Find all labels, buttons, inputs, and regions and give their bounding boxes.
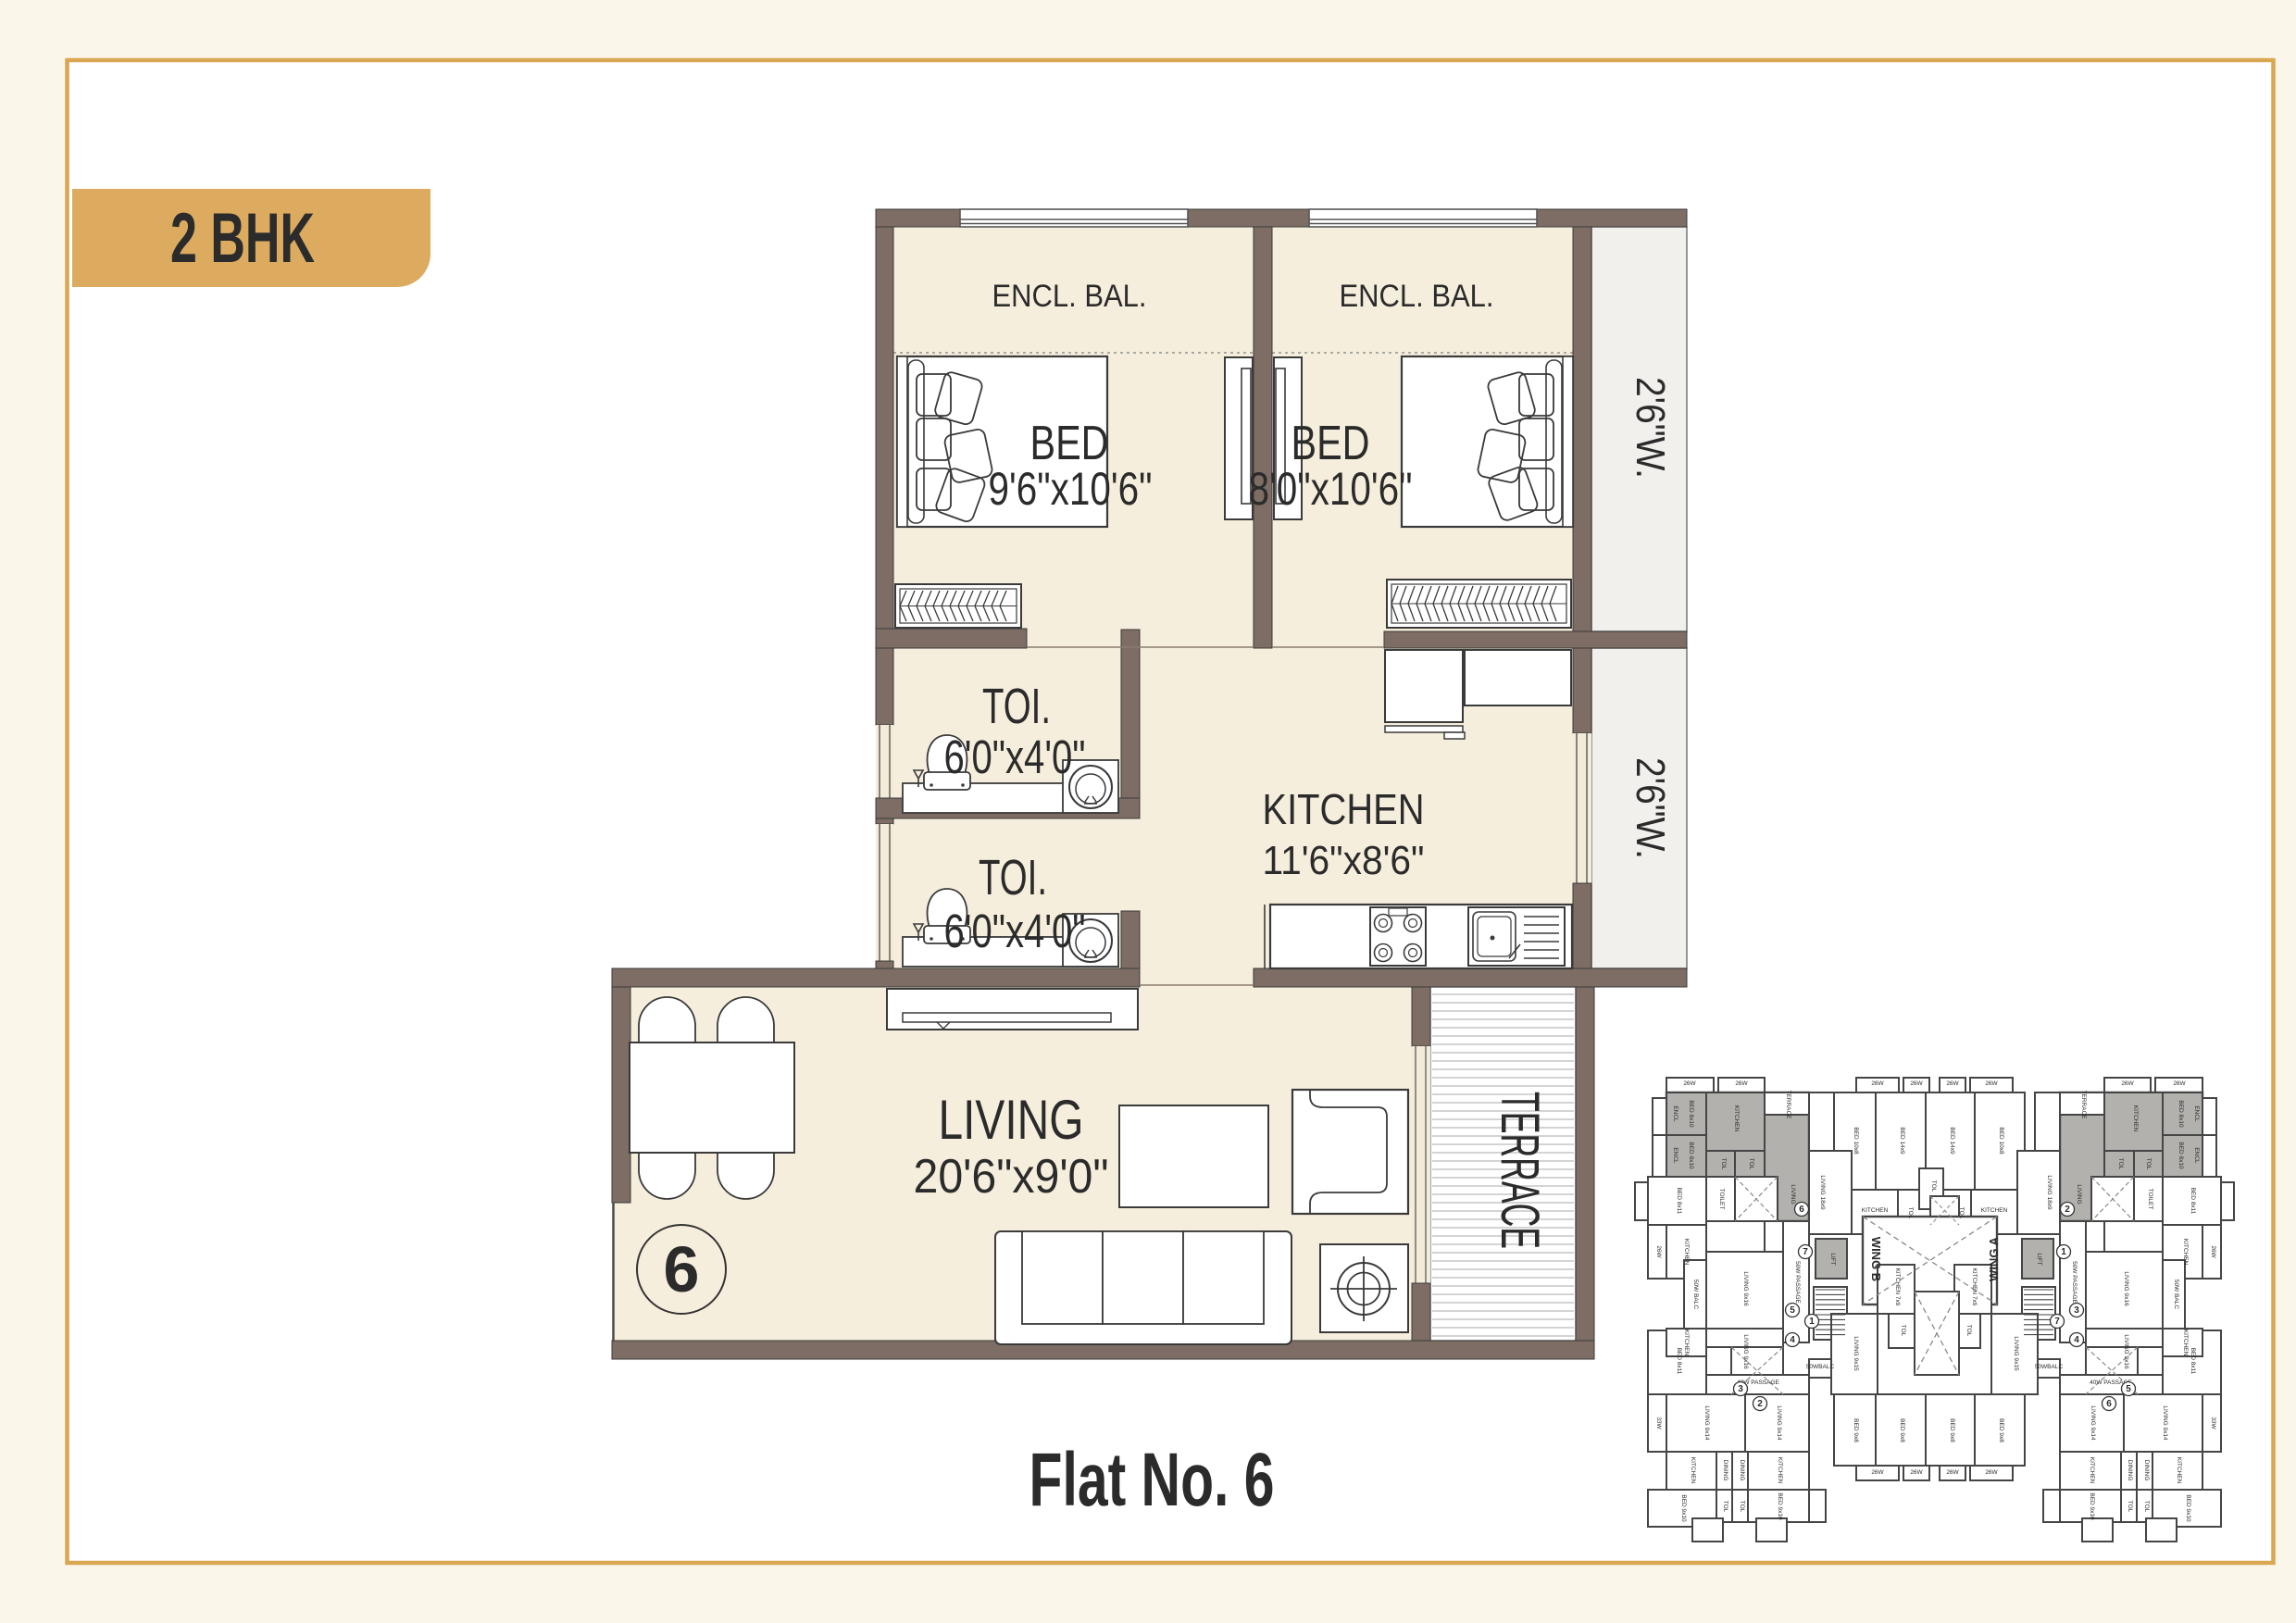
svg-text:26W: 26W	[2210, 1245, 2216, 1258]
svg-text:BED 8x10: BED 8x10	[2177, 1100, 2184, 1128]
svg-text:BED 8x11: BED 8x11	[2190, 1348, 2196, 1375]
svg-text:BED 9x10: BED 9x10	[2185, 1494, 2191, 1522]
svg-text:TOL: TOL	[2127, 1501, 2133, 1513]
svg-text:KITCHEN: KITCHEN	[1733, 1105, 1740, 1132]
svg-text:BED 9x10: BED 9x10	[1777, 1492, 1783, 1520]
svg-text:BED 9x8: BED 9x8	[1998, 1418, 2004, 1442]
svg-text:KITCHEN 7x9: KITCHEN 7x9	[1971, 1268, 1978, 1306]
svg-text:9'6"x10'6": 9'6"x10'6"	[989, 463, 1153, 515]
svg-text:WING B: WING B	[1869, 1237, 1883, 1281]
svg-text:LIVING 9x15: LIVING 9x15	[2013, 1336, 2019, 1371]
svg-text:ENCL: ENCL	[1672, 1147, 1678, 1164]
svg-text:KITCHEN: KITCHEN	[1777, 1457, 1783, 1484]
svg-text:3: 3	[1738, 1384, 1743, 1394]
svg-text:6: 6	[1799, 1205, 1804, 1215]
svg-text:ENCL. BAL.: ENCL. BAL.	[992, 279, 1147, 314]
svg-text:LIVING: LIVING	[939, 1089, 1084, 1151]
svg-text:TOL: TOL	[2143, 1501, 2150, 1513]
svg-text:TOL: TOL	[2145, 1158, 2152, 1170]
svg-text:TOL: TOL	[1722, 1501, 1728, 1513]
svg-text:TOL: TOL	[1907, 1207, 1914, 1219]
svg-text:26W: 26W	[1871, 1469, 1884, 1476]
svg-text:2: 2	[1757, 1399, 1763, 1409]
svg-text:TOILET: TOILET	[1718, 1189, 1725, 1210]
svg-text:TERRACE: TERRACE	[1785, 1090, 1791, 1119]
svg-text:KITCHEN: KITCHEN	[1690, 1457, 1696, 1484]
svg-text:LIVING 9x16: LIVING 9x16	[1742, 1334, 1749, 1369]
svg-text:TERRACE: TERRACE	[1490, 1092, 1550, 1249]
svg-text:1: 1	[2061, 1247, 2066, 1257]
svg-text:2'6"W.: 2'6"W.	[1628, 377, 1673, 479]
svg-text:KITCHEN: KITCHEN	[1263, 785, 1425, 833]
svg-text:BED 8x11: BED 8x11	[2190, 1188, 2196, 1215]
svg-text:TOILET: TOILET	[2147, 1189, 2153, 1210]
svg-text:LIVING 9x14: LIVING 9x14	[1776, 1405, 1782, 1441]
svg-text:KITCHEN: KITCHEN	[1862, 1207, 1889, 1214]
svg-text:LIVING 9x16: LIVING 9x16	[2123, 1334, 2129, 1369]
svg-text:TOI.: TOI.	[979, 850, 1047, 905]
svg-text:26W: 26W	[1946, 1080, 1959, 1087]
svg-text:KITCHEN: KITCHEN	[1683, 1239, 1690, 1266]
svg-text:26W: 26W	[1655, 1245, 1662, 1258]
svg-text:KITCHEN: KITCHEN	[1683, 1330, 1690, 1356]
svg-text:TOL: TOL	[1900, 1325, 1906, 1337]
svg-text:TOL: TOL	[1739, 1501, 1745, 1513]
svg-text:7: 7	[1803, 1247, 1808, 1257]
svg-text:TOL: TOL	[1930, 1180, 1937, 1192]
svg-text:LIVING 9x14: LIVING 9x14	[1703, 1405, 1710, 1441]
svg-text:50W PASSAGE: 50W PASSAGE	[1794, 1261, 1801, 1304]
svg-text:ENCL. BAL.: ENCL. BAL.	[1340, 279, 1494, 314]
svg-text:TERRACE: TERRACE	[2080, 1090, 2087, 1119]
svg-text:50W PASSAGE: 50W PASSAGE	[2071, 1261, 2078, 1304]
svg-text:20'6"x9'0": 20'6"x9'0"	[914, 1150, 1109, 1204]
svg-text:BED 9x10: BED 9x10	[1680, 1494, 1687, 1522]
svg-text:5: 5	[1790, 1305, 1795, 1316]
svg-text:LIVING 9x14: LIVING 9x14	[2162, 1405, 2168, 1441]
svg-text:26W: 26W	[1985, 1469, 1998, 1476]
svg-text:BED 9x10: BED 9x10	[2089, 1492, 2095, 1520]
svg-text:26W: 26W	[2121, 1080, 2134, 1087]
svg-text:26W: 26W	[1910, 1469, 1923, 1476]
svg-text:BED 10x8: BED 10x8	[1853, 1127, 1859, 1155]
svg-text:LIVING 18x9: LIVING 18x9	[2046, 1175, 2053, 1210]
svg-text:DINING: DINING	[1722, 1460, 1728, 1481]
svg-text:BED 8x10: BED 8x10	[1688, 1100, 1694, 1128]
svg-text:LIFT: LIFT	[2036, 1253, 2042, 1265]
svg-text:ENCL: ENCL	[2193, 1147, 2200, 1164]
svg-text:Flat No. 6: Flat No. 6	[1029, 1438, 1275, 1522]
svg-text:KITCHEN: KITCHEN	[2132, 1105, 2139, 1132]
svg-text:KITCHEN: KITCHEN	[2182, 1330, 2189, 1356]
svg-text:TOI.: TOI.	[982, 679, 1051, 734]
svg-text:26W: 26W	[1946, 1469, 1959, 1476]
svg-text:DINING: DINING	[2143, 1460, 2150, 1481]
svg-text:6'0"x4'0": 6'0"x4'0"	[944, 730, 1086, 783]
svg-text:LIVING 9x14: LIVING 9x14	[2090, 1405, 2096, 1441]
svg-text:BED 9x8: BED 9x8	[1949, 1418, 1955, 1442]
svg-text:8'0"x10'6": 8'0"x10'6"	[1249, 463, 1413, 515]
svg-text:2 BHK: 2 BHK	[170, 199, 315, 278]
svg-text:26W: 26W	[1910, 1080, 1923, 1087]
svg-text:BED 8x10: BED 8x10	[2177, 1142, 2184, 1169]
svg-text:26W: 26W	[1985, 1080, 1998, 1087]
svg-text:26W: 26W	[1735, 1080, 1748, 1087]
svg-text:50WBALC: 50WBALC	[1806, 1364, 1835, 1370]
svg-text:ENCL: ENCL	[1672, 1105, 1678, 1122]
svg-text:DINING: DINING	[1739, 1460, 1745, 1481]
svg-text:26W: 26W	[1683, 1080, 1696, 1087]
svg-text:TOL: TOL	[1965, 1325, 1972, 1337]
svg-text:LIVING 18x9: LIVING 18x9	[1819, 1175, 1826, 1210]
svg-text:LIVING 9x16: LIVING 9x16	[1742, 1271, 1749, 1306]
svg-text:BED 14x9: BED 14x9	[1899, 1127, 1905, 1155]
svg-text:LIVING: LIVING	[1790, 1184, 1796, 1204]
svg-text:LIVING: LIVING	[2076, 1184, 2082, 1204]
svg-text:26W: 26W	[1871, 1080, 1884, 1087]
svg-text:50WBALC: 50WBALC	[2035, 1364, 2064, 1370]
svg-text:TOL: TOL	[1720, 1158, 1727, 1170]
svg-text:KITCHEN: KITCHEN	[2089, 1457, 2095, 1484]
svg-text:11'6"x8'6": 11'6"x8'6"	[1263, 838, 1425, 883]
svg-text:6: 6	[2106, 1399, 2112, 1409]
svg-text:26W: 26W	[2173, 1080, 2186, 1087]
svg-text:BED 8x11: BED 8x11	[1676, 1188, 1682, 1215]
svg-text:50W BALC: 50W BALC	[2173, 1280, 2179, 1309]
svg-text:DINING: DINING	[2127, 1460, 2133, 1481]
svg-text:BED 14x9: BED 14x9	[1949, 1127, 1955, 1155]
svg-text:ENCL: ENCL	[2193, 1105, 2200, 1122]
svg-text:50W BALC: 50W BALC	[1692, 1280, 1699, 1309]
svg-text:WING A: WING A	[1987, 1236, 2001, 1281]
svg-text:1: 1	[1809, 1317, 1815, 1327]
svg-text:33W: 33W	[1655, 1417, 1662, 1429]
svg-text:LIVING 9x15: LIVING 9x15	[1853, 1336, 1859, 1371]
svg-text:BED 8x10: BED 8x10	[1688, 1142, 1694, 1169]
svg-text:KITCHEN: KITCHEN	[2182, 1239, 2189, 1266]
svg-text:KITCHEN: KITCHEN	[2176, 1457, 2182, 1484]
svg-text:6: 6	[664, 1233, 700, 1305]
svg-text:4: 4	[1790, 1335, 1795, 1345]
svg-text:7: 7	[2054, 1317, 2060, 1327]
svg-text:5: 5	[2126, 1384, 2131, 1394]
svg-text:KITCHEN: KITCHEN	[1981, 1207, 2008, 1214]
svg-text:4: 4	[2074, 1335, 2079, 1345]
svg-text:LIVING 9x16: LIVING 9x16	[2123, 1271, 2129, 1306]
svg-text:6'0"x4'0": 6'0"x4'0"	[944, 905, 1086, 957]
svg-text:KITCHEN 7x9: KITCHEN 7x9	[1894, 1268, 1901, 1306]
svg-text:2: 2	[2065, 1205, 2070, 1215]
svg-text:33W: 33W	[2210, 1417, 2216, 1429]
svg-text:2'6"W.: 2'6"W.	[1628, 757, 1673, 859]
svg-text:BED 9x8: BED 9x8	[1899, 1418, 1905, 1442]
svg-text:BED 10x8: BED 10x8	[1998, 1127, 2004, 1155]
svg-text:TOL: TOL	[1958, 1207, 1965, 1219]
svg-text:3: 3	[2074, 1305, 2079, 1316]
svg-text:BED 9x8: BED 9x8	[1853, 1418, 1859, 1442]
svg-text:TOL: TOL	[2117, 1158, 2124, 1170]
svg-text:BED 8x11: BED 8x11	[1676, 1348, 1682, 1375]
svg-text:LIFT: LIFT	[1829, 1253, 1836, 1265]
svg-text:TOL: TOL	[1748, 1158, 1754, 1170]
